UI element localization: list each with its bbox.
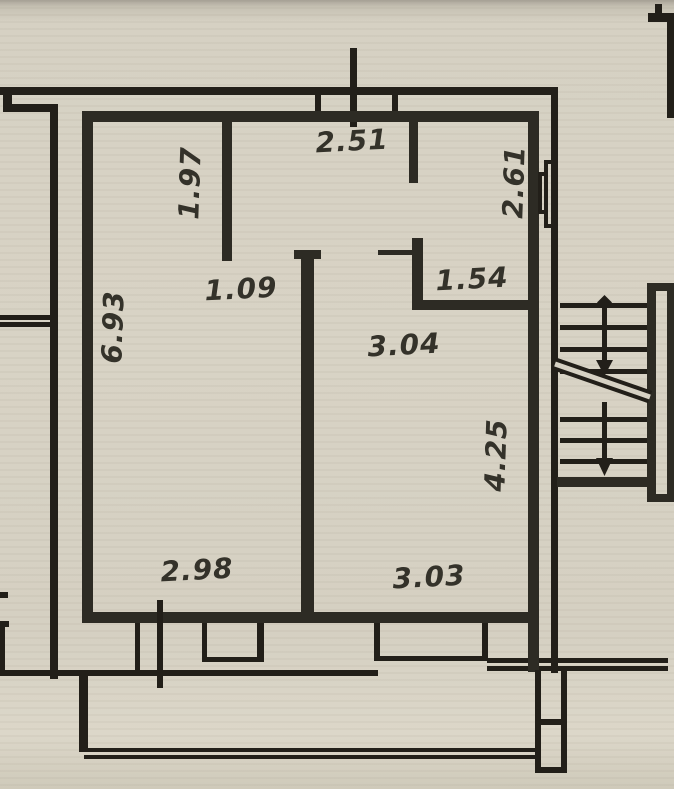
dimension-right-room-width: 1.54	[435, 261, 510, 298]
window-tick-right	[392, 95, 398, 111]
dimension-right-room-height: 2.61	[496, 145, 532, 219]
dimension-left-partition: 1.97	[172, 146, 208, 220]
dimension-right-wall-lower: 4.25	[478, 418, 514, 492]
dimension-partition-gap: 1.09	[204, 271, 279, 308]
dimension-left-wall: 6.93	[95, 290, 131, 364]
neighbour-structure-top-right	[648, 4, 674, 118]
dimension-left-room-bottom: 2.98	[160, 552, 235, 589]
dimension-top-window: 2.51	[315, 123, 390, 160]
stair-arrow-down-icon	[596, 458, 613, 476]
stair-landing-edge	[557, 477, 647, 487]
apartment-walls	[82, 111, 539, 672]
axis-mark-bottom	[157, 600, 163, 688]
balcony-railing	[84, 748, 537, 752]
balcony-and-window-bays	[84, 600, 567, 773]
dimension-right-room-bottom: 3.03	[392, 559, 467, 596]
window-tick-left	[315, 95, 321, 111]
stairwell	[555, 283, 674, 502]
door-leaf	[378, 250, 415, 255]
dimension-main-room-width: 3.04	[367, 327, 442, 364]
floor-plan-photo: 2.51 1.97 2.61 1.09 1.54 6.93 3.04 4.25 …	[0, 0, 674, 789]
floor-plan-drawing	[0, 0, 674, 789]
